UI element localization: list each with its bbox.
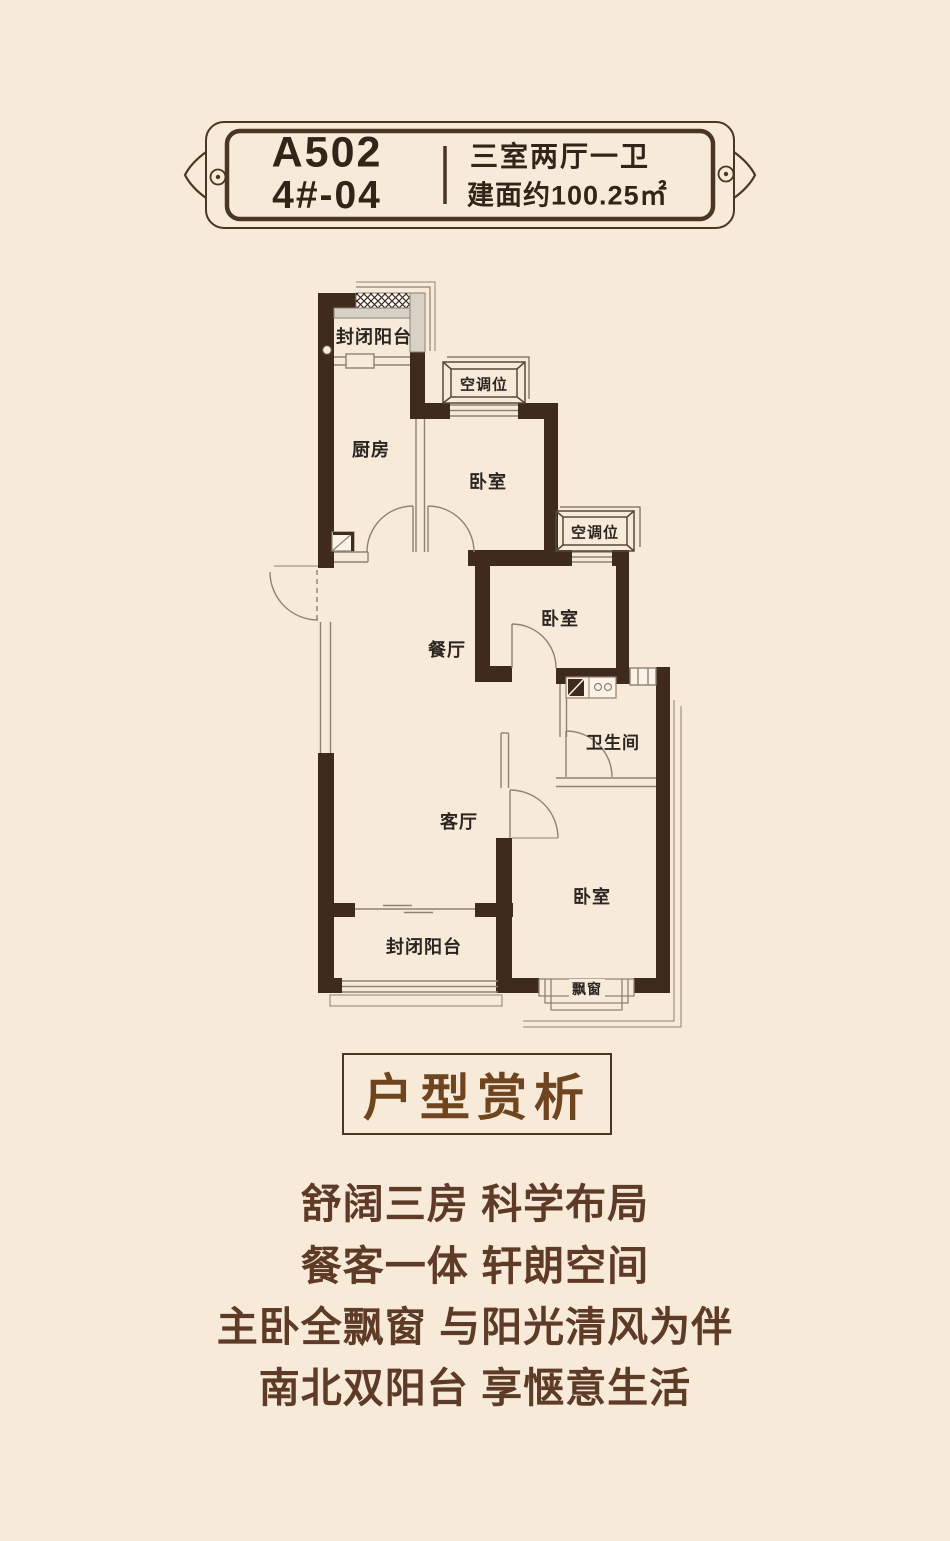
hatch-window-icon bbox=[356, 293, 410, 308]
room-label-bedroom-master: 卧室 bbox=[573, 883, 611, 909]
room-label-balcony-bottom: 封闭阳台 bbox=[386, 933, 462, 959]
plan-walls bbox=[318, 293, 670, 993]
kitchen-fixture bbox=[332, 532, 354, 551]
room-label-ac-right: 空调位 bbox=[571, 522, 619, 543]
room-label-living: 客厅 bbox=[440, 808, 478, 834]
appreciation-box: 户型赏析 bbox=[342, 1053, 612, 1135]
room-label-bedroom-mid: 卧室 bbox=[541, 605, 579, 631]
bathroom-sink bbox=[566, 677, 616, 698]
area-text: 建面约100.25㎡ bbox=[467, 174, 668, 213]
appreciation-line-3: 主卧全飘窗 与阳光清风为伴 bbox=[0, 1293, 950, 1353]
unit-code: A502 bbox=[272, 129, 383, 178]
pipe-marker-icon bbox=[323, 346, 332, 355]
room-label-bay-window: 飘窗 bbox=[569, 979, 605, 999]
room-label-kitchen: 厨房 bbox=[352, 436, 390, 462]
appreciation-line-2: 餐客一体 轩朗空间 bbox=[0, 1232, 950, 1292]
appreciation-line-4: 南北双阳台 享惬意生活 bbox=[0, 1354, 950, 1414]
layout-type: 三室两厅一卫 bbox=[470, 135, 650, 175]
room-label-bedroom-top: 卧室 bbox=[469, 468, 507, 494]
room-label-bathroom: 卫生间 bbox=[586, 729, 640, 754]
page: A502 4#-04 三室两厅一卫 建面约100.25㎡ 封闭阳台 厨房 空调位… bbox=[0, 0, 950, 1541]
appreciation-title: 户型赏析 bbox=[363, 1058, 591, 1130]
unit-number: 4#-04 bbox=[272, 174, 382, 218]
room-label-ac-top: 空调位 bbox=[460, 374, 508, 395]
plan-windows bbox=[274, 354, 681, 1027]
appreciation-line-1: 舒阔三房 科学布局 bbox=[0, 1170, 950, 1230]
room-label-dining: 餐厅 bbox=[428, 636, 466, 662]
room-label-balcony-top: 封闭阳台 bbox=[336, 323, 412, 349]
